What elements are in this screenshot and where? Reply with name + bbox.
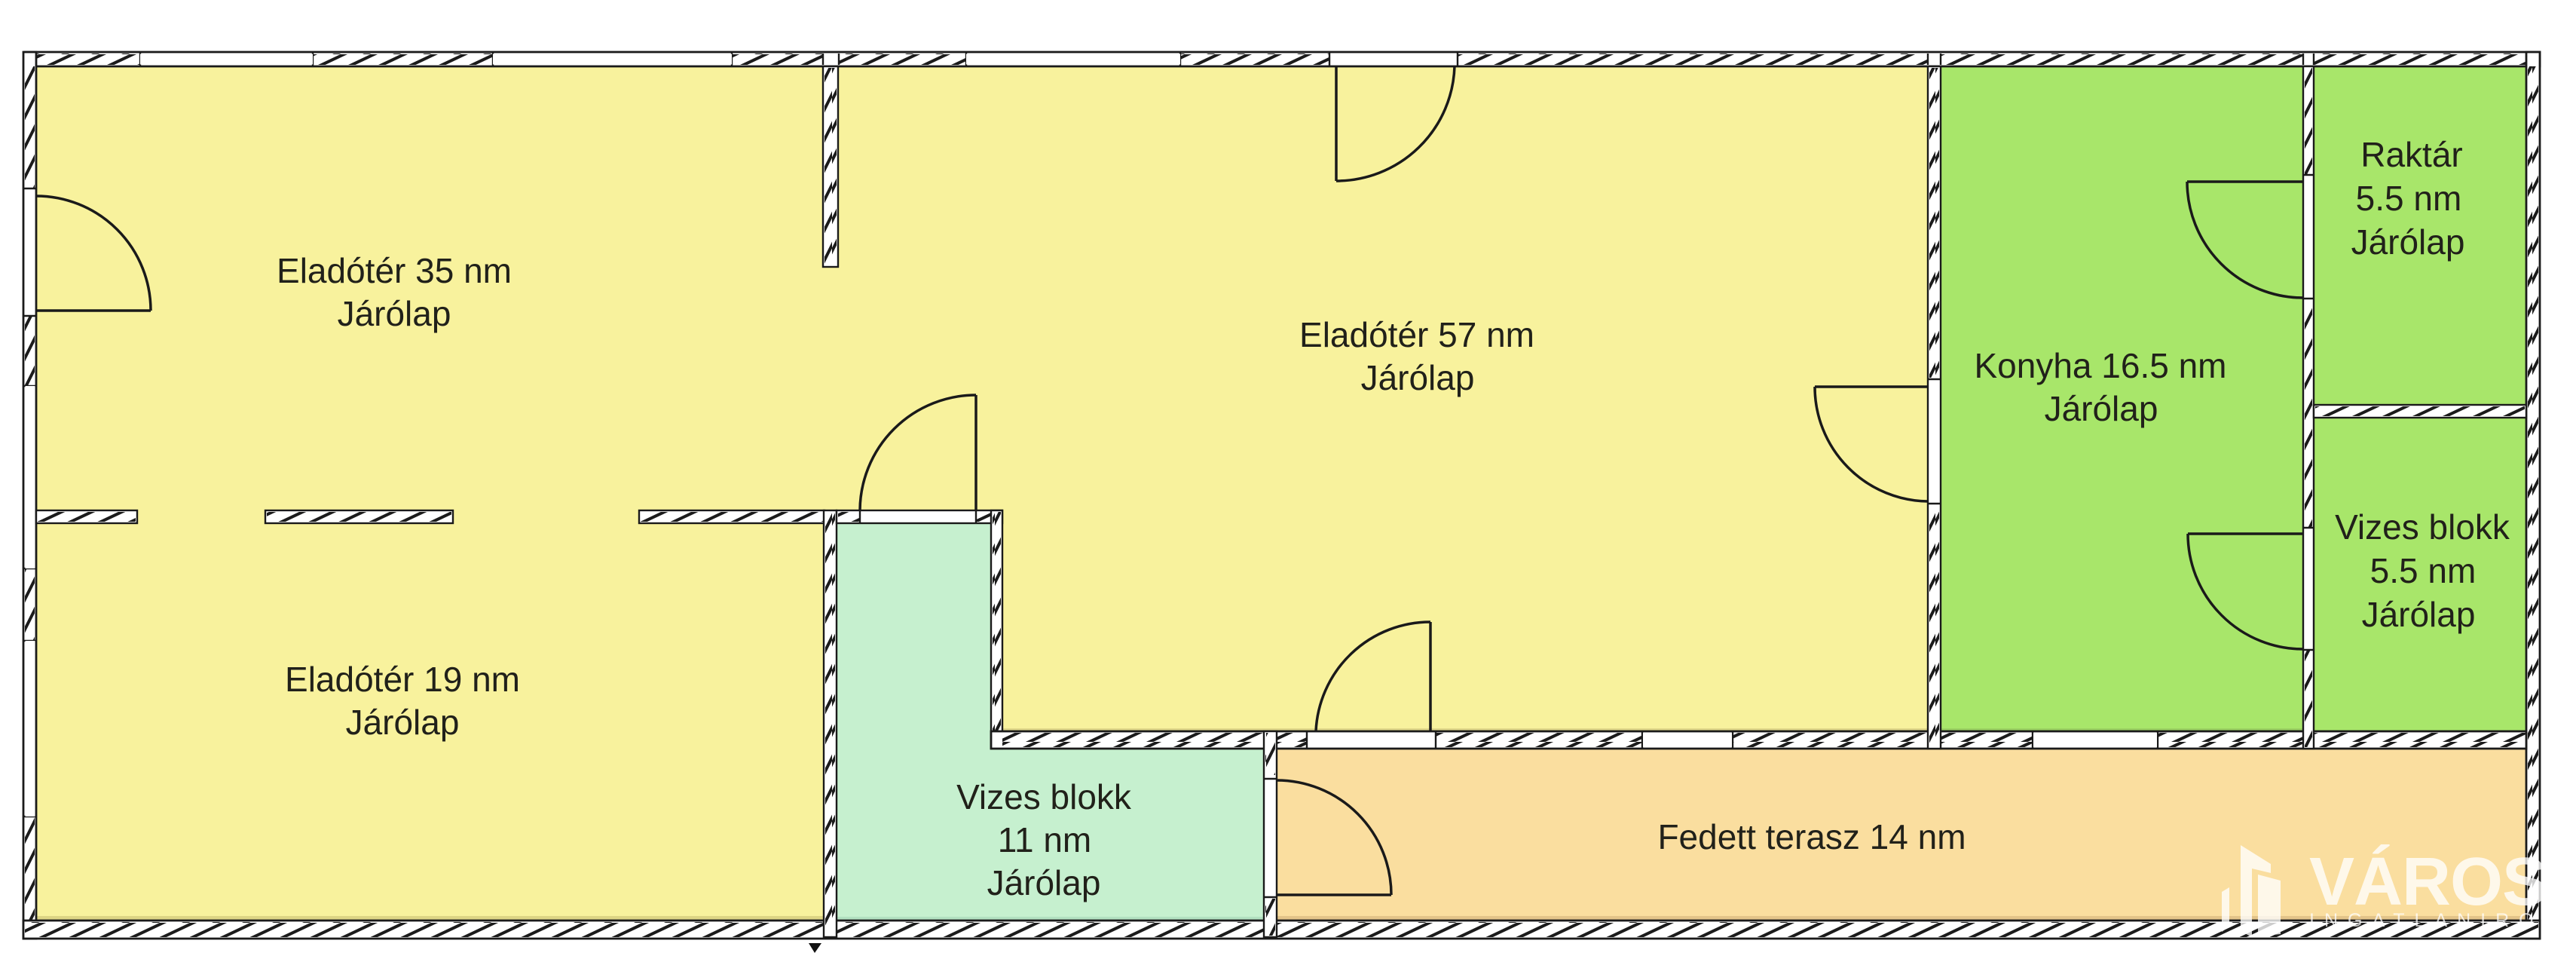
svg-text:11 nm: 11 nm — [998, 820, 1091, 859]
svg-text:VÁROSI: VÁROSI — [2309, 844, 2565, 920]
svg-text:Járólap: Járólap — [2045, 389, 2158, 428]
svg-text:Járólap: Járólap — [338, 294, 451, 333]
svg-text:Eladótér 19 nm: Eladótér 19 nm — [285, 660, 520, 699]
svg-text:Járólap: Járólap — [346, 703, 460, 742]
svg-text:Járólap: Járólap — [987, 863, 1101, 902]
svg-text:Járólap: Járólap — [1361, 358, 1475, 397]
svg-text:Konyha 16.5 nm: Konyha 16.5 nm — [1974, 346, 2226, 385]
svg-text:Járólap: Járólap — [2351, 222, 2465, 262]
svg-text:Járólap: Járólap — [2362, 595, 2476, 634]
svg-text:Eladótér 57 nm: Eladótér 57 nm — [1299, 315, 1534, 354]
svg-text:5.5 nm: 5.5 nm — [2356, 179, 2462, 218]
svg-text:5.5 nm: 5.5 nm — [2370, 551, 2477, 590]
svg-text:Fedett terasz 14 nm: Fedett terasz 14 nm — [1657, 817, 1966, 856]
svg-text:Raktár: Raktár — [2360, 135, 2462, 174]
svg-text:Eladótér 35 nm: Eladótér 35 nm — [277, 251, 512, 290]
svg-text:Vizes blokk: Vizes blokk — [956, 777, 1132, 816]
svg-text:Vizes blokk: Vizes blokk — [2335, 507, 2510, 547]
svg-text:INGATLANIRODA: INGATLANIRODA — [2309, 910, 2576, 931]
